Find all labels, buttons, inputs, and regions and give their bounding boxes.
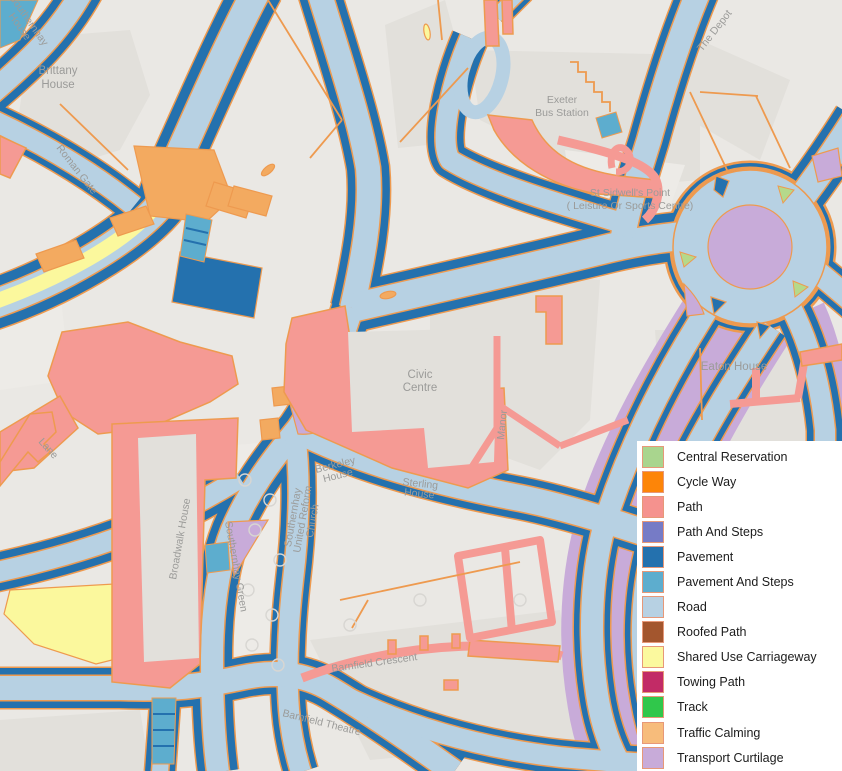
legend-label: Shared Use Carriageway bbox=[677, 650, 817, 664]
label-civic-centre: Civic bbox=[408, 369, 433, 381]
legend-item-track: Track bbox=[637, 695, 842, 720]
path-tooth bbox=[452, 634, 460, 648]
traffic-calming bbox=[260, 418, 280, 440]
label-brittany-house: House bbox=[41, 79, 74, 91]
legend-label: Transport Curtilage bbox=[677, 751, 784, 765]
label-st-sidwells: St Sidwell's Point bbox=[590, 187, 670, 199]
legend-swatch-towing-path bbox=[642, 671, 664, 693]
roundabout-island bbox=[708, 205, 792, 289]
legend-item-roofed-path: Roofed Path bbox=[637, 620, 842, 645]
building bbox=[0, 710, 150, 771]
legend-swatch-path bbox=[642, 496, 664, 518]
legend-label: Traffic Calming bbox=[677, 726, 760, 740]
legend-item-traffic-calming: Traffic Calming bbox=[637, 720, 842, 745]
legend-swatch-central-reservation bbox=[642, 446, 664, 468]
legend-item-shared-use-carriageway: Shared Use Carriageway bbox=[637, 645, 842, 670]
legend-item-pavement: Pavement bbox=[637, 544, 842, 569]
path-tooth bbox=[388, 640, 396, 654]
path-segment bbox=[444, 680, 458, 690]
legend-item-path: Path bbox=[637, 494, 842, 519]
legend-item-road: Road bbox=[637, 595, 842, 620]
legend-panel: Central Reservation Cycle Way Path Path … bbox=[637, 441, 842, 771]
legend-item-transport-curtilage: Transport Curtilage bbox=[637, 745, 842, 770]
legend-item-pavement-and-steps: Pavement And Steps bbox=[637, 569, 842, 594]
legend-item-path-and-steps: Path And Steps bbox=[637, 519, 842, 544]
path-strip bbox=[502, 0, 513, 34]
legend-item-cycle-way: Cycle Way bbox=[637, 469, 842, 494]
legend-swatch-pavement bbox=[642, 546, 664, 568]
building-broadwalk-house bbox=[138, 434, 199, 662]
legend-label: Track bbox=[677, 700, 708, 714]
legend-swatch-traffic-calming bbox=[642, 722, 664, 744]
label-sterling-house: Sterling House bbox=[401, 476, 439, 502]
legend-swatch-transport-curtilage bbox=[642, 747, 664, 769]
legend-swatch-path-and-steps bbox=[642, 521, 664, 543]
legend-item-towing-path: Towing Path bbox=[637, 670, 842, 695]
label-civic-centre: Centre bbox=[403, 382, 438, 394]
legend-label: Cycle Way bbox=[677, 475, 736, 489]
label-brittany-house: Brittany bbox=[39, 65, 78, 77]
path-strip bbox=[484, 0, 499, 46]
legend-swatch-pavement-and-steps bbox=[642, 571, 664, 593]
legend-swatch-shared-use-carriageway bbox=[642, 646, 664, 668]
legend-label: Central Reservation bbox=[677, 450, 787, 464]
legend-label: Roofed Path bbox=[677, 625, 747, 639]
map-view: Southernhay House Brittany House Roman G… bbox=[0, 0, 842, 771]
legend-label: Towing Path bbox=[677, 675, 745, 689]
legend-swatch-roofed-path bbox=[642, 621, 664, 643]
legend-label: Path bbox=[677, 500, 703, 514]
legend-item-central-reservation: Central Reservation bbox=[637, 444, 842, 469]
legend-swatch-track bbox=[642, 696, 664, 718]
legend-label: Path And Steps bbox=[677, 525, 763, 539]
legend-label: Pavement bbox=[677, 550, 733, 564]
legend-label: Road bbox=[677, 600, 707, 614]
legend-swatch-road bbox=[642, 596, 664, 618]
label-eaton-house: Eaton House bbox=[701, 361, 768, 373]
label-bus-station: Bus Station bbox=[535, 107, 589, 119]
legend-swatch-cycle-way bbox=[642, 471, 664, 493]
legend-label: Pavement And Steps bbox=[677, 575, 794, 589]
label-bus-station: Exeter bbox=[547, 94, 578, 106]
label-st-sidwells: ( Leisure Or Sports Centre) bbox=[567, 200, 694, 212]
pavement-and-steps bbox=[205, 542, 230, 573]
path-tooth bbox=[420, 636, 428, 650]
